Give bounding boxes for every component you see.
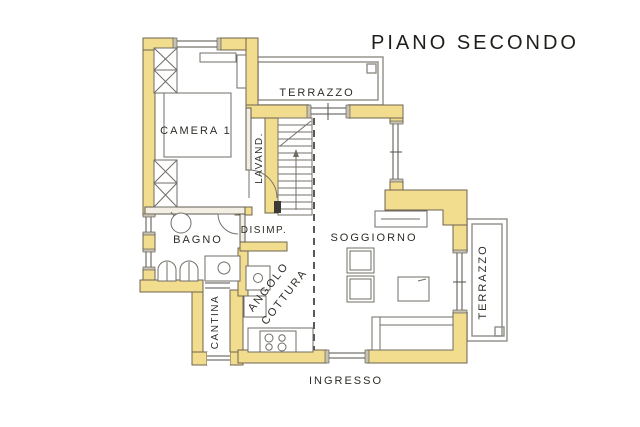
shelf [200, 53, 236, 62]
coffee-table [398, 277, 429, 301]
floor-plan-page: PIANO SECONDO TERRAZZO CAMERA 1 LAVAND. … [0, 0, 640, 427]
armchair-1 [347, 248, 374, 273]
armchair-2 [347, 276, 374, 302]
label-terrazzo-top: TERRAZZO [279, 87, 354, 99]
label-ingresso: INGRESSO [309, 375, 383, 387]
soggiorno-upper-window [388, 121, 405, 182]
label-soggiorno: SOGGIORNO [330, 232, 417, 244]
page-title: PIANO SECONDO [371, 32, 579, 54]
bagno-window-1 [141, 214, 157, 235]
bagno-fixtures [158, 212, 240, 281]
soggiorno-terrace-window [451, 250, 469, 313]
label-disimpegno: DISIMP. [241, 225, 287, 236]
cantina-top-opening [205, 283, 230, 288]
terrace-top-door [307, 103, 350, 120]
sofa [372, 317, 453, 350]
staircase [274, 118, 312, 215]
label-bagno: BAGNO [173, 234, 223, 246]
label-cantina: CANTINA [210, 295, 221, 349]
label-camera: CAMERA 1 [160, 125, 232, 137]
ingresso-door-opening [325, 348, 369, 365]
shower [205, 256, 240, 281]
bagno-window-2 [141, 249, 157, 270]
label-lavanderia: LAVAND. [254, 132, 265, 184]
floor-plan-drawing: PIANO SECONDO TERRAZZO CAMERA 1 LAVAND. … [0, 0, 640, 427]
label-terrazzo-right: TERRAZZO [477, 244, 489, 319]
cantina-bottom-opening [207, 352, 230, 365]
radiator [237, 55, 246, 88]
camera-window [173, 36, 221, 52]
